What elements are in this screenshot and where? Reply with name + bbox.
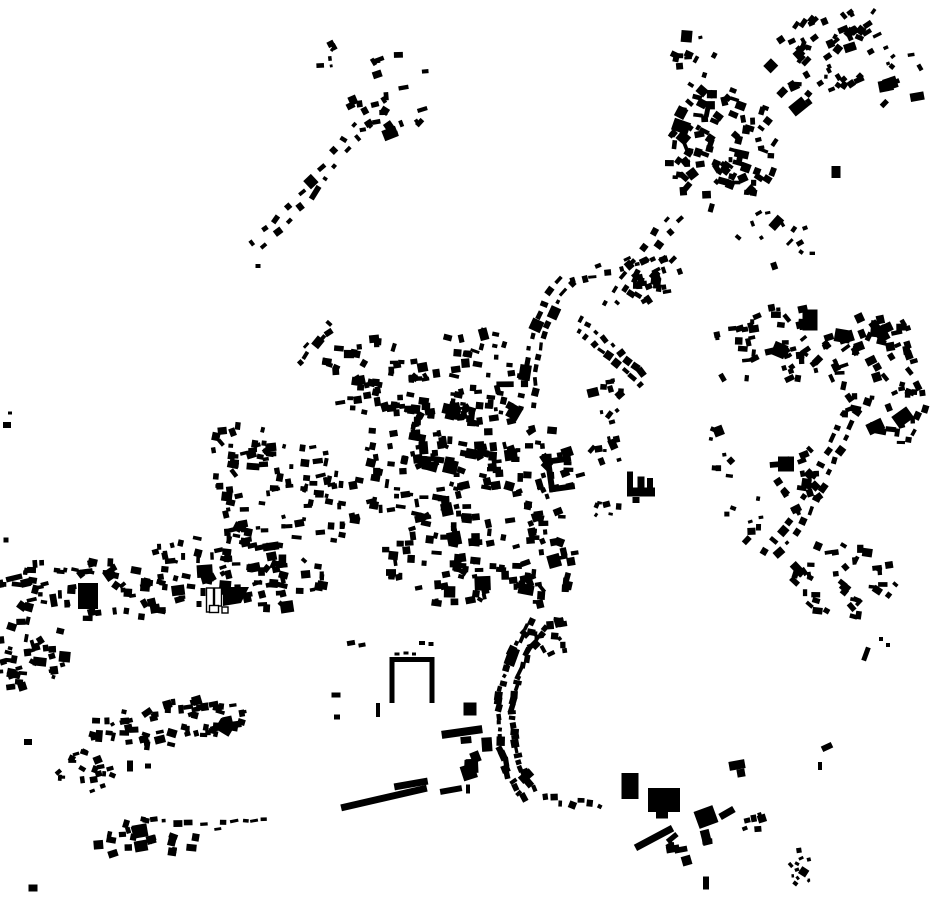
map-viewport xyxy=(0,0,930,924)
map-canvas xyxy=(0,0,930,924)
